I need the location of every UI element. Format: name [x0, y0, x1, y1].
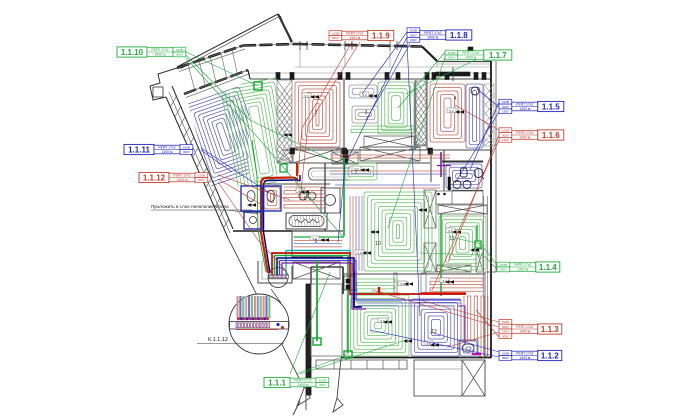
svg-text:1.1.11: 1.1.11 [128, 146, 150, 155]
svg-text:300У: 300У [319, 383, 326, 387]
svg-text:12: 12 [431, 329, 437, 335]
svg-text:10: 10 [375, 241, 381, 247]
svg-text:1.1.12: 1.1.12 [143, 174, 166, 183]
svg-text:К.1.1.12: К.1.1.12 [208, 337, 228, 343]
svg-text:1400 м: 1400 м [519, 136, 530, 140]
svg-text:100В: 100В [500, 263, 507, 267]
svg-text:1400 м: 1400 м [519, 356, 530, 360]
svg-text:9.0: 9.0 [357, 251, 362, 255]
svg-text:PERT 17х2: PERT 17х2 [516, 131, 533, 135]
svg-text:PERT 17х2: PERT 17х2 [516, 325, 533, 329]
svg-text:100В: 100В [448, 51, 455, 55]
svg-text:1.1.2: 1.1.2 [541, 352, 559, 361]
svg-text:1400 м: 1400 м [519, 107, 530, 111]
svg-text:300У: 300У [502, 133, 509, 137]
svg-text:9: 9 [315, 239, 318, 245]
svg-text:100В: 100В [410, 29, 417, 33]
svg-text:100В: 100В [502, 351, 509, 355]
svg-text:6: 6 [304, 196, 307, 202]
svg-text:300У: 300У [502, 356, 509, 360]
svg-text:7: 7 [355, 170, 358, 176]
svg-text:PERT 17х2: PERT 17х2 [173, 174, 190, 178]
svg-text:300У: 300У [502, 325, 509, 329]
svg-text:PERT 17х2: PERT 17х2 [294, 379, 311, 383]
svg-text:1.1.6: 1.1.6 [542, 131, 560, 140]
svg-text:1400 м: 1400 м [465, 56, 476, 60]
svg-text:1400 м: 1400 м [349, 36, 360, 40]
svg-text:100В: 100В [332, 31, 339, 35]
svg-text:150У: 150У [502, 138, 509, 142]
svg-text:1400 м: 1400 м [177, 178, 188, 182]
svg-text:PERT 17х2: PERT 17х2 [424, 31, 441, 35]
svg-text:PERT 17х2: PERT 17х2 [514, 263, 531, 267]
svg-text:11: 11 [449, 236, 454, 242]
svg-text:1.1.5: 1.1.5 [542, 103, 560, 112]
svg-text:1.1.3: 1.1.3 [541, 325, 559, 334]
svg-text:300У: 300У [176, 53, 183, 57]
svg-text:100В: 100В [198, 173, 205, 177]
svg-text:300У: 300У [448, 56, 455, 60]
svg-text:300У: 300У [183, 150, 190, 154]
svg-text:PERT 17х2: PERT 17х2 [516, 103, 533, 107]
svg-text:9.0: 9.0 [449, 109, 454, 113]
svg-text:1400 м: 1400 м [427, 36, 438, 40]
svg-text:1400 м: 1400 м [298, 383, 309, 387]
svg-text:1400 м: 1400 м [162, 150, 173, 154]
svg-text:300У: 300У [500, 268, 507, 272]
svg-text:100В: 100В [319, 378, 326, 382]
svg-text:100В: 100В [502, 129, 509, 133]
svg-text:150У: 150У [410, 38, 417, 42]
svg-text:PERT 17х2: PERT 17х2 [346, 32, 363, 36]
svg-text:PERT 17х2: PERT 17х2 [462, 51, 479, 55]
svg-text:1.1.7: 1.1.7 [489, 51, 507, 60]
svg-text:PERT 17х2: PERT 17х2 [158, 146, 175, 150]
svg-text:150У: 150У [502, 330, 509, 334]
svg-text:1400 м: 1400 м [519, 330, 530, 334]
svg-text:300У: 300У [502, 335, 509, 339]
svg-text:9.0: 9.0 [304, 94, 309, 98]
svg-text:1400 м: 1400 м [155, 53, 166, 57]
svg-text:9.0: 9.0 [400, 282, 405, 286]
svg-text:100В: 100В [183, 145, 190, 149]
svg-text:9.0: 9.0 [362, 93, 367, 97]
svg-text:100В: 100В [176, 48, 183, 52]
svg-text:1.1.10: 1.1.10 [121, 48, 144, 57]
svg-text:1400 м: 1400 м [517, 268, 528, 272]
svg-text:3: 3 [365, 110, 368, 116]
svg-text:100В: 100В [502, 320, 509, 324]
svg-text:4: 4 [454, 96, 457, 102]
svg-text:1.1.8: 1.1.8 [450, 31, 468, 40]
svg-text:150У: 150У [502, 110, 509, 114]
svg-text:1.1.1: 1.1.1 [268, 379, 286, 388]
svg-text:300У: 300У [332, 36, 339, 40]
svg-text:300У: 300У [198, 178, 205, 182]
svg-text:9.0: 9.0 [448, 229, 453, 233]
svg-text:PERT 17х2: PERT 17х2 [516, 352, 533, 356]
svg-text:100В: 100В [502, 100, 509, 104]
svg-text:1.1.9: 1.1.9 [372, 32, 390, 41]
svg-text:1.1.4: 1.1.4 [539, 263, 557, 272]
svg-text:300У: 300У [410, 33, 417, 37]
svg-text:Проложить в слое пенополистиро: Проложить в слое пенополистирола [151, 204, 229, 209]
svg-text:300У: 300У [502, 105, 509, 109]
svg-text:2: 2 [315, 110, 318, 116]
svg-text:PERT 17х2: PERT 17х2 [151, 48, 168, 52]
